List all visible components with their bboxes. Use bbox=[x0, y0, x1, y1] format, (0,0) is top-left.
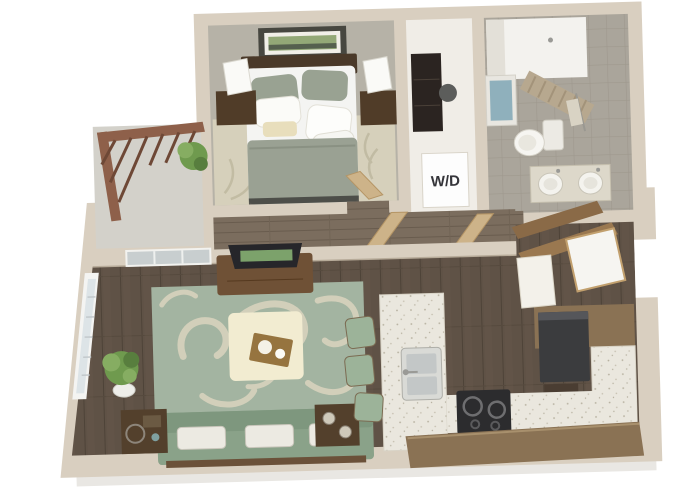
plant-pot bbox=[113, 383, 135, 398]
floor-plan-image: W/D bbox=[0, 0, 683, 487]
cooktop bbox=[456, 389, 511, 434]
lamp-left bbox=[223, 58, 252, 95]
vanity-double-sink bbox=[530, 164, 611, 202]
side-table-right bbox=[315, 404, 360, 447]
side-table-left bbox=[121, 409, 168, 454]
floor-plan-svg: W/D bbox=[0, 0, 683, 487]
nightstand-right bbox=[360, 90, 397, 125]
bedroom-doorway bbox=[347, 201, 389, 215]
refrigerator-top bbox=[538, 311, 588, 320]
table-item-box bbox=[143, 415, 161, 427]
ottoman bbox=[228, 311, 304, 381]
bathroom bbox=[484, 14, 633, 214]
lamp-right bbox=[363, 57, 392, 94]
front-door bbox=[566, 228, 626, 292]
kitchen-sink bbox=[401, 347, 442, 400]
bedroom bbox=[208, 20, 399, 205]
front-door-opening bbox=[634, 239, 660, 298]
media-console bbox=[216, 243, 313, 296]
tv-screen bbox=[240, 249, 292, 261]
balcony bbox=[93, 122, 210, 249]
shower-wall-shade bbox=[486, 19, 506, 79]
entry-desk bbox=[517, 255, 556, 308]
closet: W/D bbox=[406, 18, 477, 212]
refrigerator bbox=[538, 311, 590, 382]
speaker-knob-1 bbox=[323, 412, 335, 424]
washer-dryer-label: W/D bbox=[431, 173, 461, 191]
nightstand-left bbox=[216, 90, 257, 125]
speaker-knob-2 bbox=[339, 426, 351, 438]
bathtub-water bbox=[490, 80, 513, 121]
sliding-glass-door bbox=[126, 249, 210, 266]
wardrobe bbox=[411, 53, 443, 132]
